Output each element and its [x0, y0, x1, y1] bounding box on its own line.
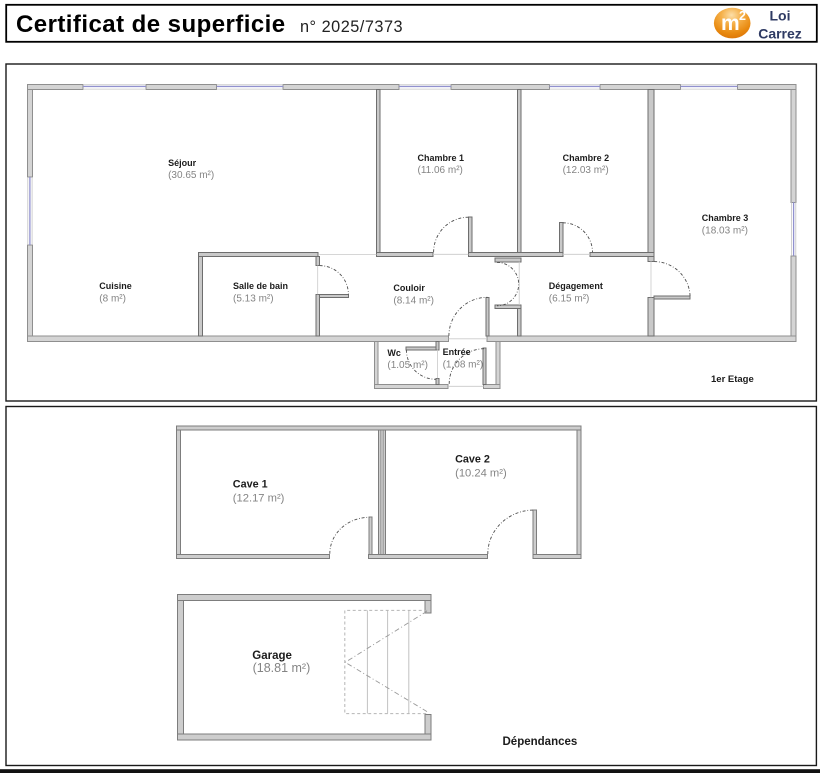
svg-text:Chambre 2: Chambre 2	[563, 153, 610, 163]
svg-text:Chambre 1: Chambre 1	[418, 153, 465, 163]
svg-text:Carrez: Carrez	[758, 25, 802, 41]
svg-text:(5.13 m²): (5.13 m²)	[233, 294, 274, 305]
svg-text:Chambre 3: Chambre 3	[702, 213, 749, 223]
svg-text:Dégagement: Dégagement	[549, 281, 603, 291]
svg-text:Dépendances: Dépendances	[503, 736, 578, 748]
svg-text:Cuisine: Cuisine	[99, 281, 132, 291]
svg-text:(6.15 m²): (6.15 m²)	[549, 293, 590, 304]
svg-text:2: 2	[739, 9, 746, 23]
svg-text:(10.24 m²): (10.24 m²)	[455, 467, 507, 479]
svg-text:(8 m²): (8 m²)	[99, 294, 126, 305]
svg-text:(12.03 m²): (12.03 m²)	[563, 165, 609, 176]
svg-text:Loi: Loi	[770, 7, 791, 23]
svg-text:(18.81 m²): (18.81 m²)	[253, 661, 311, 675]
svg-text:(11.06 m²): (11.06 m²)	[418, 165, 463, 176]
svg-text:1er Etage: 1er Etage	[711, 374, 754, 385]
svg-text:Certificat de superficie: Certificat de superficie	[16, 11, 286, 38]
svg-text:(30.65 m²): (30.65 m²)	[168, 170, 214, 181]
svg-text:(1.08 m²): (1.08 m²)	[443, 360, 484, 371]
svg-text:(12.17 m²): (12.17 m²)	[233, 492, 285, 504]
svg-text:Entrée: Entrée	[443, 347, 471, 357]
svg-text:(18.03 m²): (18.03 m²)	[702, 225, 748, 236]
svg-text:(8.14 m²): (8.14 m²)	[393, 296, 434, 307]
svg-text:Séjour: Séjour	[168, 158, 197, 168]
svg-text:Cave 2: Cave 2	[455, 453, 490, 465]
svg-text:Salle de bain: Salle de bain	[233, 281, 288, 291]
svg-text:Couloir: Couloir	[393, 283, 425, 293]
svg-text:Cave 1: Cave 1	[233, 478, 268, 490]
svg-text:n° 2025/7373: n° 2025/7373	[300, 18, 403, 36]
svg-text:m: m	[721, 12, 740, 35]
svg-text:Wc: Wc	[387, 348, 401, 358]
svg-text:(1.05 m²): (1.05 m²)	[387, 360, 428, 371]
svg-text:Garage: Garage	[252, 650, 292, 662]
